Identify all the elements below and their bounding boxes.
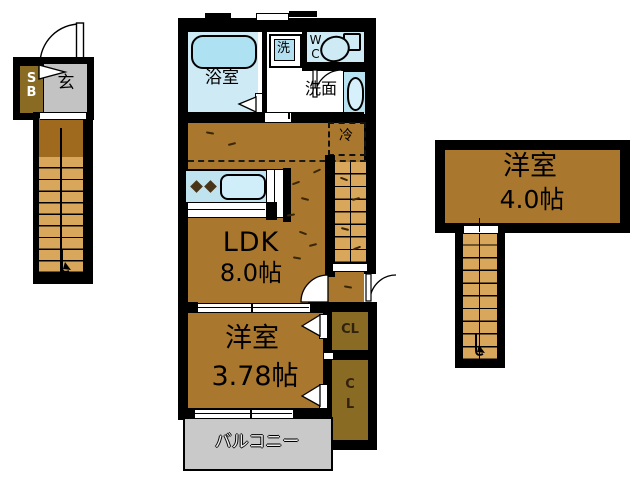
stairs-3f-threshold <box>463 225 499 234</box>
bathroom-label: 浴室 <box>194 69 250 87</box>
doorway-tick <box>288 112 290 119</box>
ldk-label: LDK <box>205 228 297 257</box>
balcony-window <box>194 409 294 419</box>
floor-plan: S B 玄 浴室 洗 W C <box>0 0 640 480</box>
washbasin-bowl <box>347 77 364 111</box>
stairs-1f-direction-arrow-icon <box>58 250 74 278</box>
bedroom-3f-size-label: 4.0帖 <box>480 186 584 213</box>
slit-window <box>256 13 289 21</box>
kitchen-cabinet-front <box>187 202 267 218</box>
closet-door-icon <box>301 314 322 338</box>
kitchen-end-cap <box>266 202 277 220</box>
ldk-size-label: 8.0帖 <box>203 261 299 287</box>
sliding-door-line <box>197 307 309 308</box>
entrance-label: 玄 <box>48 74 84 92</box>
washroom-wall-left <box>188 112 265 123</box>
balcony-window-tick <box>250 409 252 418</box>
bedroom-3f-label: 洋室 <box>478 152 582 181</box>
closet-door-icon <box>301 384 322 408</box>
entrance-threshold <box>40 112 86 120</box>
vent-icon <box>205 13 231 19</box>
closet-upper-label: CL <box>332 323 368 337</box>
stairs-3f-direction-arrow-icon <box>472 333 488 361</box>
closet-lower-label: C L <box>332 375 368 414</box>
washer-label: 洗 <box>274 42 293 56</box>
bedroom-2f-size-label: 3.78帖 <box>194 362 316 391</box>
refrigerator-label: 冷 <box>328 129 364 144</box>
sliding-door <box>197 303 311 313</box>
unit-entrance-door-arc <box>366 272 397 304</box>
bedroom-2f-label: 洋室 <box>198 324 306 353</box>
stairs-2f-threshold <box>332 263 368 272</box>
balcony-label: バルコニー <box>196 433 318 451</box>
washbasin-label: 洗面 <box>299 80 343 97</box>
kitchen-cabinet-line <box>187 209 265 210</box>
kitchen-counter-end-line <box>274 169 275 202</box>
bedroom-wall-left <box>178 302 198 313</box>
balcony-window-line <box>194 413 292 414</box>
sliding-door-tick <box>251 303 253 312</box>
kitchen-sink <box>220 174 266 200</box>
vent-icon <box>289 11 317 17</box>
stairs-2f-wall <box>325 155 335 277</box>
stairs-2f-centerline <box>350 162 351 263</box>
unit-left-wall <box>178 18 188 420</box>
closet-divider-tick <box>324 353 333 359</box>
bathtub <box>191 35 257 69</box>
ldk-door-arc <box>300 274 329 303</box>
stairs-3f-entry-tick <box>479 218 480 232</box>
